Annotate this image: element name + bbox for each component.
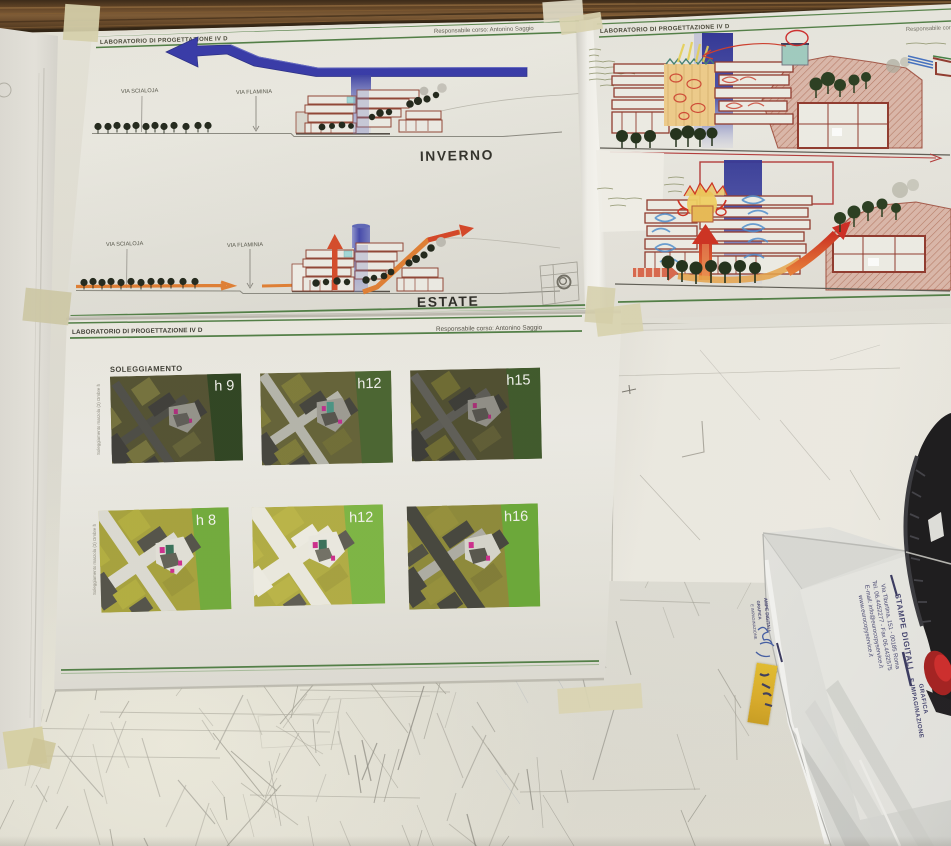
svg-text:h12: h12	[349, 510, 374, 527]
svg-text:VIA FLAMINIA: VIA FLAMINIA	[236, 89, 272, 96]
svg-text:h 8: h 8	[196, 513, 217, 530]
svg-text:VIA SCIALOJA: VIA SCIALOJA	[106, 241, 144, 248]
svg-text:h16: h16	[504, 509, 529, 526]
svg-text:SOLEGGIAMENTO: SOLEGGIAMENTO	[110, 364, 183, 374]
svg-text:h15: h15	[506, 372, 531, 389]
svg-text:VIA FLAMINIA: VIA FLAMINIA	[227, 242, 263, 249]
svg-text:h12: h12	[357, 376, 382, 393]
svg-text:Soleggiamento marzola (3) Ombr: Soleggiamento marzola (3) Ombre h	[92, 523, 97, 595]
svg-text:Responsabile cor: Responsabile cor	[906, 25, 951, 33]
svg-text:Soleggiamento marzola (3) Ombr: Soleggiamento marzola (3) Ombre h	[96, 383, 101, 455]
svg-text:VIA SCIALOJA: VIA SCIALOJA	[121, 88, 159, 95]
svg-text:h 9: h 9	[214, 378, 235, 394]
svg-text:LABORATORIO DI PROGETTAZIONE I: LABORATORIO DI PROGETTAZIONE IV D	[72, 327, 203, 336]
svg-text:INVERNO: INVERNO	[420, 147, 494, 164]
